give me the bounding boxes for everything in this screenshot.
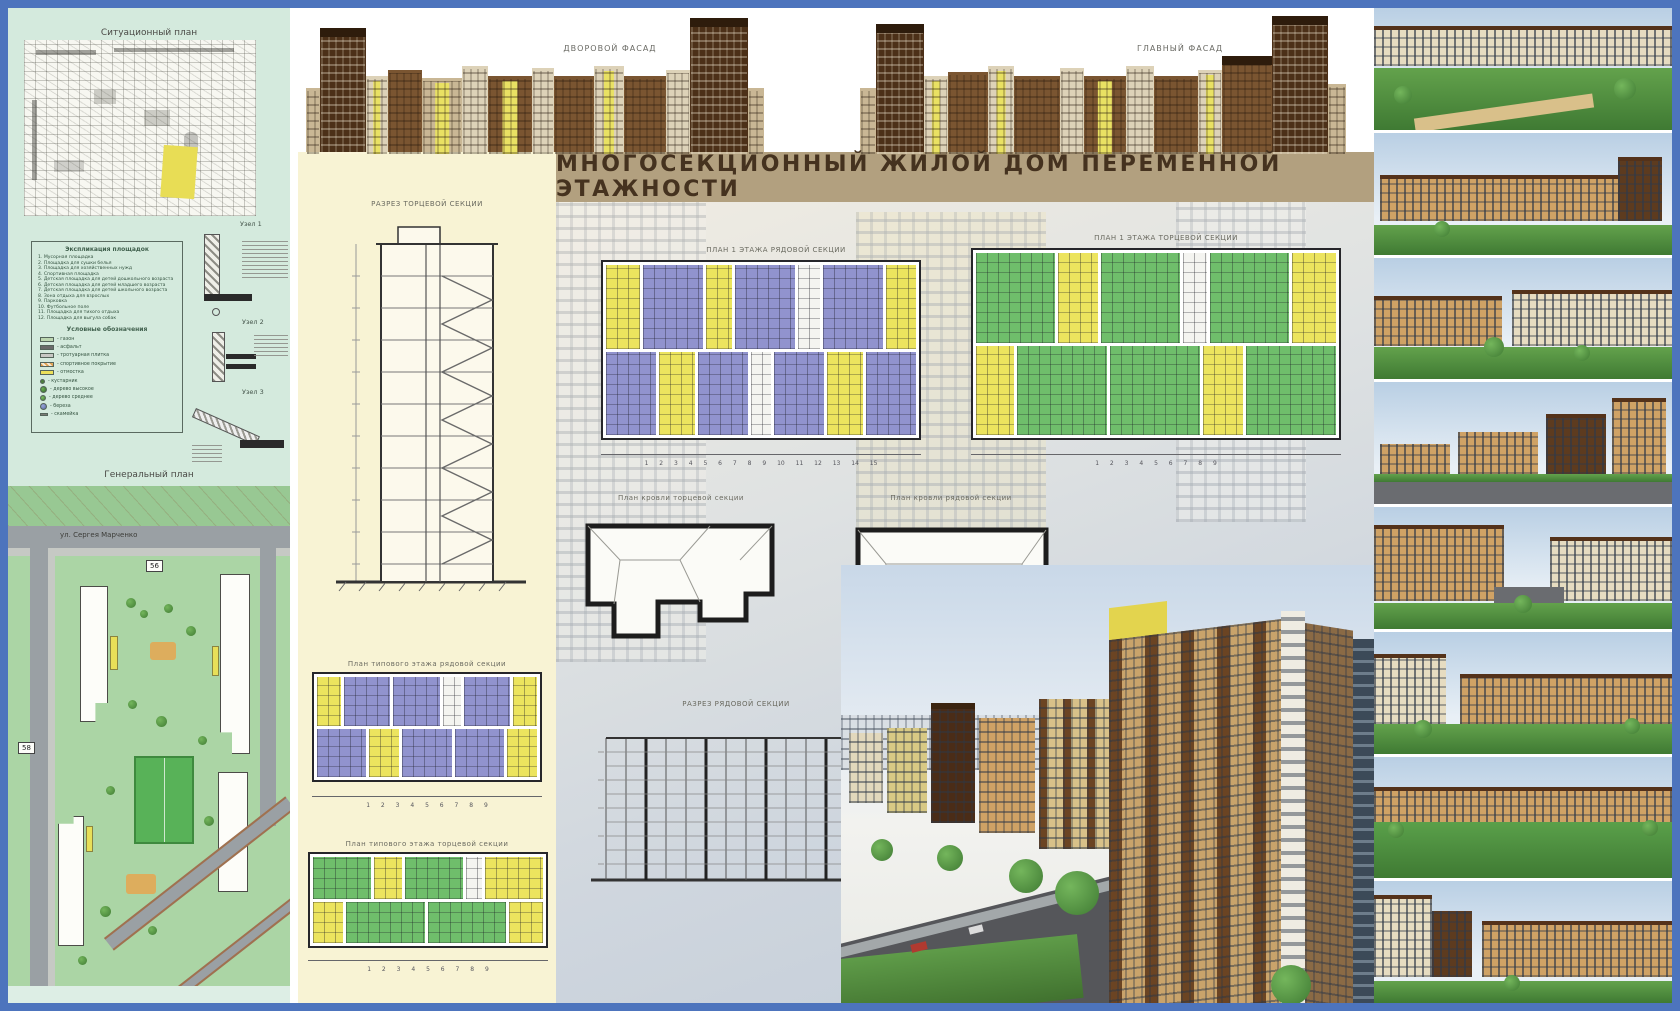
apartment-cell <box>1101 253 1180 343</box>
background-building <box>887 728 927 813</box>
plan-row <box>606 265 916 349</box>
section-end-title: РАЗРЕЗ ТОРЦЕВОЙ СЕКЦИИ <box>298 200 556 208</box>
plot-badge-58: 58 <box>18 742 35 754</box>
medium-tree-icon <box>40 395 46 401</box>
tree <box>128 700 137 709</box>
presentation-board: Ситуационный план Экспликация площадок 1… <box>0 0 1680 1011</box>
apartment-cell <box>393 677 439 726</box>
balcony-strip <box>604 71 614 154</box>
detail-node-3-drawing <box>188 400 288 470</box>
apartment-cell <box>374 857 402 899</box>
explication-item: 5. Детская площадка для детей дошкольног… <box>38 277 182 283</box>
render-thumbnail <box>1374 8 1672 130</box>
plan1-end-drawing <box>971 248 1341 440</box>
wall-hatch <box>212 332 225 382</box>
tree <box>937 845 963 871</box>
tower <box>1432 911 1472 977</box>
landing-slab <box>240 440 284 448</box>
detail-node-2-drawing <box>212 332 288 386</box>
symbol-row: - отмостка <box>32 369 182 377</box>
apartment-cell <box>1203 346 1243 436</box>
roof-line <box>1618 157 1662 161</box>
roof-line <box>1374 26 1672 30</box>
apartment-cell <box>1246 346 1336 436</box>
left-panel: Ситуационный план Экспликация площадок 1… <box>8 8 290 1003</box>
tree <box>148 926 157 935</box>
annotation-lines <box>192 444 222 462</box>
roof-line <box>1546 414 1606 418</box>
apartment-cell <box>313 857 371 899</box>
apartment-cell <box>774 352 824 436</box>
plan-row <box>317 729 537 778</box>
birch-icon <box>40 403 47 410</box>
render-thumbnail <box>1374 258 1672 380</box>
building-row <box>1460 678 1672 724</box>
playground <box>126 874 156 894</box>
sidewalk <box>48 556 55 986</box>
map-block <box>94 90 116 104</box>
typ-plan-row-drawing <box>312 672 542 782</box>
tree <box>204 816 214 826</box>
map-road-mark <box>36 50 96 55</box>
background-building <box>979 718 1035 833</box>
side-road <box>260 526 276 826</box>
apartment-cell <box>698 352 748 436</box>
roof-line <box>1482 921 1672 925</box>
explication-list: 1. Мусорная площадка 2. Площадка для суш… <box>32 255 182 321</box>
building <box>1380 444 1450 474</box>
building-row <box>1374 791 1672 825</box>
playground <box>150 642 176 660</box>
general-plan-title: Генеральный план <box>8 470 290 480</box>
facade-section <box>306 88 320 154</box>
roof-line <box>1612 398 1666 402</box>
tree <box>140 610 148 618</box>
tall-tree-icon <box>40 386 47 393</box>
plan1-row-drawing <box>601 260 921 440</box>
title-band: Многосекционный жилой дом переменной эта… <box>556 152 1374 202</box>
center-collage: ПЛАН 1 ЭТАЖА РЯДОВОЙ СЕКЦИИ <box>556 202 1374 1011</box>
symbol-row: - дерево высокое <box>32 385 182 393</box>
typ-plan-row-title: План типового этажа рядовой секции <box>298 660 556 668</box>
background-building <box>849 733 883 803</box>
facade-section <box>860 88 876 154</box>
sports-field <box>1374 822 1672 878</box>
cream-column: РАЗРЕЗ ТОРЦЕВОЙ СЕКЦИИ План типового эта… <box>298 152 556 1003</box>
dimension-line <box>971 454 1341 455</box>
symbol-row: - газон <box>32 335 182 343</box>
building-row <box>1482 925 1672 977</box>
situational-plan-title: Ситуационный план <box>8 28 290 38</box>
symbol-row: - береза <box>32 402 182 410</box>
building <box>1374 529 1504 601</box>
building <box>1374 300 1502 346</box>
yellow-section <box>212 646 219 676</box>
facade-section <box>462 66 488 154</box>
apartment-cell <box>606 265 640 349</box>
apartment-cell <box>317 729 366 778</box>
balcony-strip <box>932 81 940 154</box>
dimension-line <box>601 454 921 455</box>
main-building-glazed-edge <box>1353 639 1374 1011</box>
section-row-drawing <box>586 714 866 894</box>
lawn-swatch <box>40 337 54 342</box>
main-facade-drawing <box>860 14 1348 154</box>
map-block <box>144 110 170 126</box>
symbol-row: - скамейка <box>32 411 182 419</box>
render-thumbnail <box>1374 133 1672 255</box>
apartment-cell <box>1017 346 1107 436</box>
facade-section <box>1328 84 1346 154</box>
street-road <box>1374 482 1672 504</box>
tree <box>1414 720 1432 738</box>
football-field <box>134 756 194 844</box>
typ-plan-end-drawing <box>308 852 548 948</box>
plot-badge-56: 56 <box>146 560 163 572</box>
annotation-lines <box>242 238 288 278</box>
apartment-cell <box>509 902 543 944</box>
facade-section <box>1084 76 1126 154</box>
facade-section <box>924 76 948 154</box>
facade-section <box>1154 76 1198 154</box>
apartment-cell <box>1210 253 1289 343</box>
panel-footer-strip <box>8 986 290 1003</box>
facade-section <box>594 66 624 154</box>
facade-section <box>1222 56 1272 154</box>
apartment-cell <box>313 902 343 944</box>
apartment-cell <box>976 253 1055 343</box>
tower <box>1618 161 1662 221</box>
apartment-cell <box>402 729 451 778</box>
facade-section <box>624 76 666 154</box>
render-thumbnail <box>1374 507 1672 629</box>
dimension-line <box>312 796 542 797</box>
residential-slab <box>220 574 250 754</box>
balcony-strip <box>435 83 449 154</box>
facade-tower <box>320 28 366 154</box>
courtyard-facade-drawing <box>306 14 768 154</box>
grid-axis-numbers: 1 2 3 4 5 6 7 8 9 10 11 12 13 14 15 <box>601 460 921 467</box>
plan-row <box>976 253 1336 343</box>
apartment-cell <box>827 352 863 436</box>
grid-axis-numbers: 1 2 3 4 5 6 7 8 9 <box>312 802 542 809</box>
roof-end-title: План кровли торцевой секции <box>576 494 786 502</box>
tree <box>1514 595 1532 613</box>
apartment-cell <box>346 902 425 944</box>
apartment-cell <box>976 346 1014 436</box>
shrub-icon <box>40 379 45 384</box>
apartment-cell <box>706 265 732 349</box>
facade-tower <box>876 24 924 154</box>
apartment-cell <box>405 857 463 899</box>
plan-row <box>317 677 537 726</box>
symbols-title: Условные обозначения <box>34 326 180 333</box>
plan-row <box>313 857 543 899</box>
roof-line <box>1374 787 1672 791</box>
apartment-cell <box>369 729 399 778</box>
symbol-row: - тротуарная плитка <box>32 352 182 360</box>
facade-section <box>1014 76 1060 154</box>
apartment-cell <box>1292 253 1336 343</box>
map-road-mark <box>32 100 37 180</box>
map-road-mark <box>114 48 234 52</box>
tree <box>1394 86 1412 104</box>
floor-slab <box>204 294 252 301</box>
tree <box>1624 718 1640 734</box>
render-column <box>1374 8 1672 1003</box>
main-building-corner-pier <box>1281 611 1305 1011</box>
apartment-cell <box>513 677 537 726</box>
facade-tower <box>1272 16 1328 154</box>
symbol-row: - спортивное покрытие <box>32 360 182 368</box>
roof-line <box>1380 175 1630 179</box>
grid-axis-numbers: 1 2 3 4 5 6 7 8 9 <box>308 966 548 973</box>
balcony-slab <box>226 364 256 369</box>
yellow-section <box>86 826 93 852</box>
verge <box>1374 474 1672 482</box>
bench-icon <box>40 413 48 416</box>
roof-plan-end-drawing <box>580 508 780 658</box>
symbol-row: - дерево среднее <box>32 394 182 402</box>
tree <box>156 716 167 727</box>
stair-core-cell <box>466 857 482 899</box>
apartment-cell <box>659 352 695 436</box>
tree <box>100 906 111 917</box>
apartment-cell <box>464 677 510 726</box>
detail-node-1-drawing <box>204 234 288 314</box>
tree <box>198 736 207 745</box>
yellow-section <box>110 636 118 670</box>
lawn <box>1374 225 1672 255</box>
balcony-strip <box>1098 81 1112 154</box>
plan-row <box>313 902 543 944</box>
facade-section <box>748 88 764 154</box>
sport-surface-swatch <box>40 362 54 367</box>
wall-hatch <box>204 234 220 298</box>
balcony-strip <box>503 81 518 154</box>
building <box>1458 432 1538 474</box>
apartment-cell <box>344 677 390 726</box>
facade-section <box>1126 66 1154 154</box>
facades-strip: ДВОРОВОЙ ФАСАД ГЛАВНЫЙ ФАСАД <box>290 8 1374 160</box>
apartment-cell <box>606 352 656 436</box>
residential-slab <box>58 816 84 946</box>
detail-marker <box>212 308 220 316</box>
node3-title: Узел 3 <box>242 388 264 396</box>
render-thumbnail <box>1374 881 1672 1003</box>
tree <box>106 786 115 795</box>
building <box>1512 294 1672 346</box>
render-thumbnail <box>1374 382 1672 504</box>
general-plan-map: ул. Сергея Марченко 56 58 <box>8 486 290 986</box>
lawn <box>1374 981 1672 1003</box>
background-tower <box>931 703 975 823</box>
tree <box>871 839 893 861</box>
facade-section <box>988 66 1014 154</box>
apartment-cell <box>1058 253 1098 343</box>
tree <box>186 626 196 636</box>
tree <box>164 604 173 613</box>
poster-title: Многосекционный жилой дом переменной эта… <box>556 152 1374 202</box>
tree <box>78 956 87 965</box>
tower <box>1612 402 1666 474</box>
facade-section <box>554 76 594 154</box>
entrance-core-cell <box>798 265 820 349</box>
roof-line <box>1550 537 1672 541</box>
plan1-end-title: ПЛАН 1 ЭТАЖА ТОРЦЕВОЙ СЕКЦИИ <box>986 234 1346 242</box>
white-building <box>1374 899 1432 977</box>
entrance-core-cell <box>1183 253 1207 343</box>
symbol-row: - кустарник <box>32 377 182 385</box>
facade-section <box>532 68 554 154</box>
dimension-line <box>308 960 548 961</box>
plan1-row-title: ПЛАН 1 ЭТАЖА РЯДОВОЙ СЕКЦИИ <box>616 246 936 254</box>
section-row-title: РАЗРЕЗ РЯДОВОЙ СЕКЦИИ <box>616 700 856 708</box>
white-building <box>1374 658 1446 724</box>
facade-section <box>948 72 988 154</box>
main-building-street-face <box>1305 623 1353 1011</box>
node1-title: Узел 1 <box>240 220 262 228</box>
tree <box>1434 221 1450 237</box>
tree <box>1009 859 1043 893</box>
map-site-highlight <box>160 145 198 199</box>
apartment-cell <box>886 265 916 349</box>
roof-line <box>1512 290 1672 294</box>
apartment-cell <box>643 265 703 349</box>
apartment-cell <box>735 265 795 349</box>
explication-title: Экспликация площадок <box>34 246 180 253</box>
green-belt <box>8 486 290 526</box>
balcony-strip <box>373 81 380 154</box>
facade-tower <box>690 18 748 154</box>
facade-section <box>488 76 532 154</box>
apartment-cell <box>485 857 543 899</box>
section-end-drawing <box>326 214 536 606</box>
roof-line <box>1374 525 1504 529</box>
roof-line <box>1460 674 1672 678</box>
map-block <box>54 160 84 172</box>
tree <box>1504 975 1520 991</box>
stair-core-cell <box>443 677 461 726</box>
side-road <box>30 526 48 986</box>
roof-line <box>1374 296 1502 300</box>
apartment-cell <box>317 677 341 726</box>
blind-area-swatch <box>40 370 54 375</box>
roof-line <box>1374 895 1432 899</box>
lawn <box>1374 347 1672 379</box>
tree <box>1271 965 1311 1005</box>
balcony-slab <box>226 354 256 359</box>
plan-row <box>606 352 916 436</box>
main-building-south-face <box>1109 619 1281 1011</box>
street-name-label: ул. Сергея Марченко <box>60 531 137 539</box>
tree <box>126 598 136 608</box>
sidewalk <box>8 548 290 556</box>
situational-plan-map <box>24 40 256 216</box>
apartment-cell <box>455 729 504 778</box>
building <box>1546 418 1606 474</box>
render-thumbnail <box>1374 632 1672 754</box>
explication-item: 12. Площадка для выгула собак <box>38 316 182 322</box>
facade-section <box>366 76 388 154</box>
facade-section <box>1060 68 1084 154</box>
grid-axis-numbers: 1 2 3 4 5 6 7 8 9 <box>971 460 1341 467</box>
roof-line <box>1374 654 1446 658</box>
balcony-strip <box>1206 75 1214 154</box>
asphalt-swatch <box>40 345 54 350</box>
building <box>1550 541 1672 601</box>
annotation-lines <box>254 334 288 356</box>
entrance-core-cell <box>751 352 771 436</box>
render-thumbnail <box>1374 757 1672 879</box>
hero-render <box>841 565 1374 1011</box>
roof-row-title: План кровли рядовой секции <box>846 494 1056 502</box>
apartment-cell <box>428 902 507 944</box>
explication-item: 7. Детская площадка для детей школьного … <box>38 288 182 294</box>
building-row <box>1380 179 1630 221</box>
plan-row <box>976 346 1336 436</box>
tree <box>1614 78 1636 100</box>
street-road <box>8 526 290 548</box>
legend-box: Экспликация площадок 1. Мусорная площадк… <box>31 241 183 433</box>
apartment-cell <box>1110 346 1200 436</box>
building-row <box>1374 30 1672 66</box>
residential-slab <box>80 586 108 722</box>
paving-swatch <box>40 353 54 358</box>
facade-section <box>666 70 690 154</box>
balcony-strip <box>997 71 1006 154</box>
facade-section <box>422 78 462 154</box>
background-building <box>1039 699 1109 849</box>
tree <box>1055 871 1099 915</box>
apartment-cell <box>866 352 916 436</box>
node2-title: Узел 2 <box>242 318 264 326</box>
facade-section <box>388 70 422 154</box>
typ-plan-end-title: План типового этажа торцевой секции <box>298 840 556 848</box>
apartment-cell <box>507 729 537 778</box>
symbol-row: - асфальт <box>32 343 182 351</box>
apartment-cell <box>823 265 883 349</box>
facade-section <box>1198 70 1222 154</box>
